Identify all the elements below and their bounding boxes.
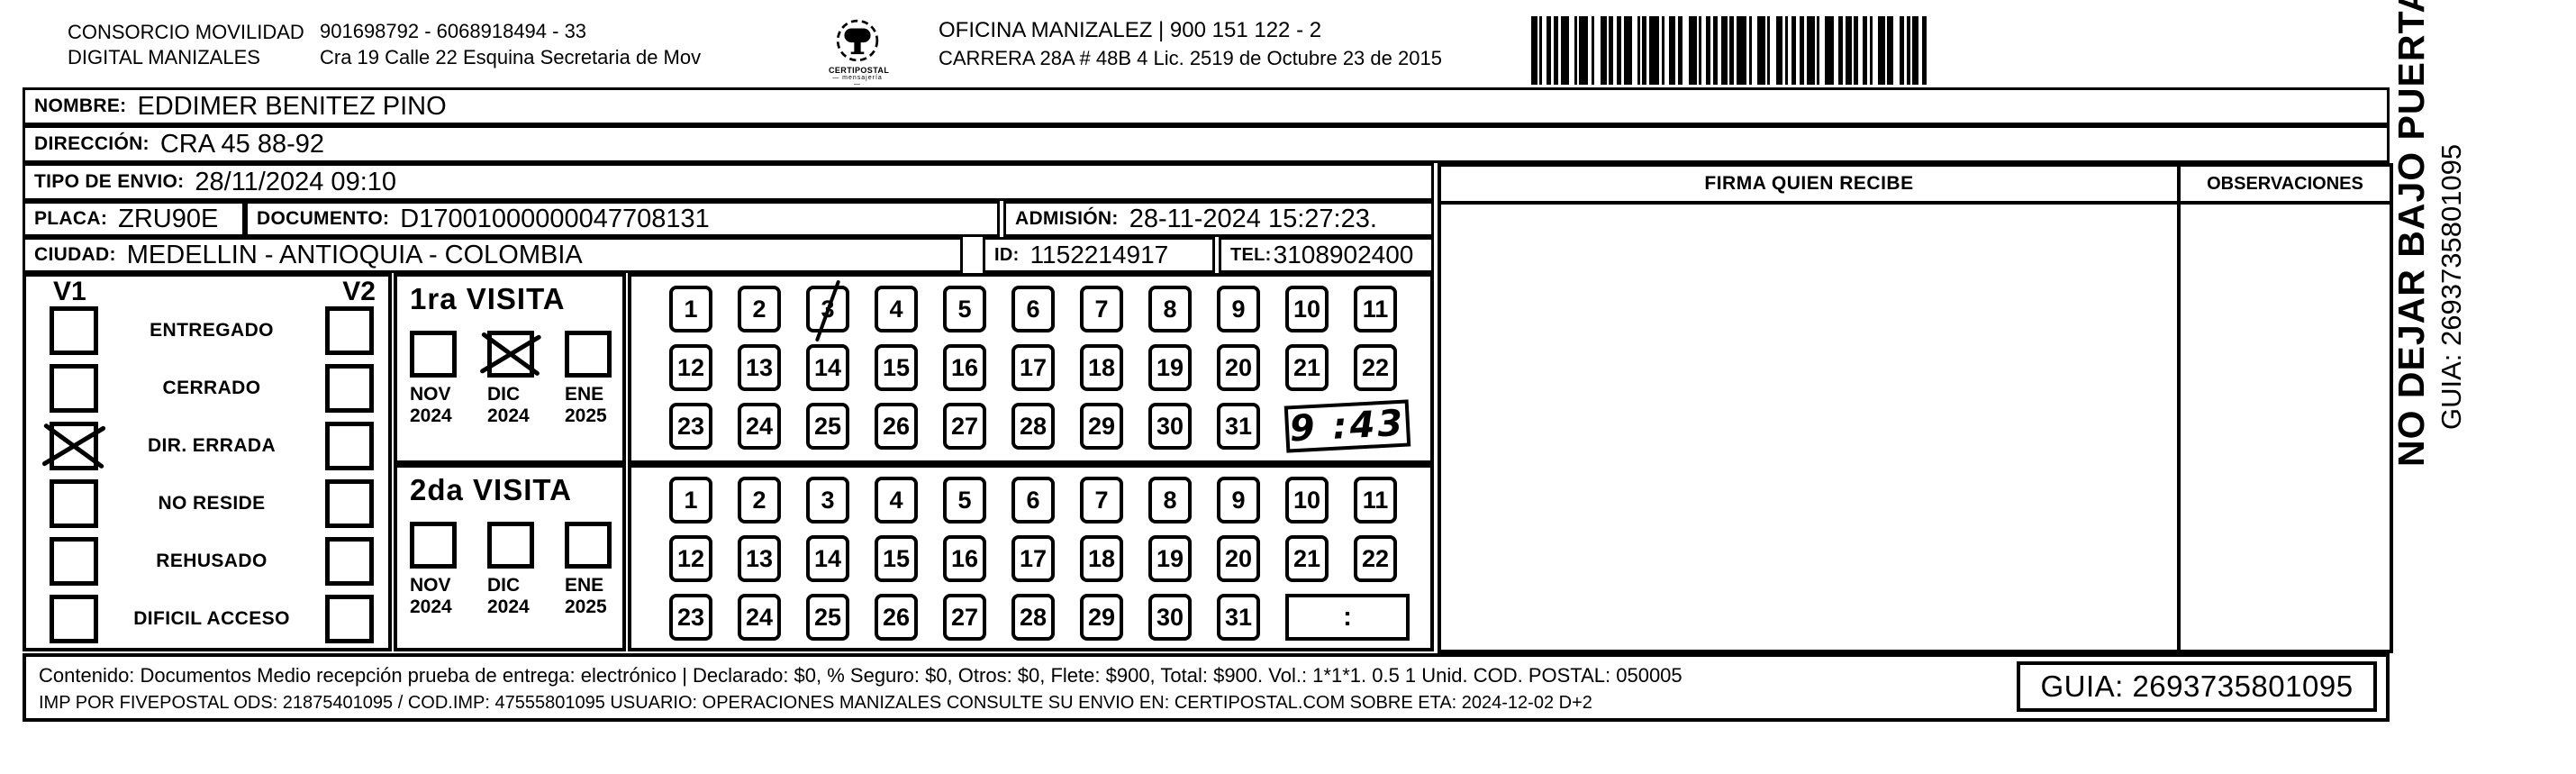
- certipostal-logo-icon: [835, 18, 880, 63]
- signature-region: FIRMA QUIEN RECIBE OBSERVACIONES: [1438, 163, 2393, 653]
- certipostal-logo: CERTIPOSTAL — mensajería —: [829, 18, 886, 87]
- day-cell: 25: [806, 594, 849, 641]
- day-cell: 10: [1285, 477, 1329, 524]
- barcode-bar: [1617, 16, 1621, 85]
- day-cell: 31: [1217, 403, 1260, 450]
- barcode-bar: [1574, 16, 1577, 85]
- day-cell: 26: [875, 403, 918, 450]
- field-admision: ADMISIÓN: 28-11-2024 15:27:23.: [1003, 201, 1434, 237]
- day-cell: 10: [1285, 286, 1329, 332]
- day-cell: 22: [1354, 344, 1397, 391]
- field-documento: DOCUMENTO: D17001000000047708131: [245, 201, 1000, 237]
- company-line1: CONSORCIO MOVILIDAD: [68, 20, 304, 45]
- v1-checkbox: [50, 537, 98, 586]
- day-cell: 28: [1011, 594, 1055, 641]
- visit2-panel: 2da VISITA NOV2024DIC2024ENE2025: [394, 464, 626, 651]
- barcode-bar: [1649, 16, 1659, 85]
- month-year: 2024: [410, 596, 452, 618]
- side-guia-text: GUIA: 2693735801095: [2435, 106, 2475, 467]
- v1-checkbox: [50, 595, 98, 643]
- footer-content-line: Contenido: Documentos Medio recepción pr…: [39, 664, 1683, 687]
- barcode-bar: [1870, 16, 1873, 85]
- day-cell: 16: [943, 535, 986, 582]
- month-option: NOV2024: [410, 331, 457, 427]
- barcode-bar: [1776, 16, 1782, 85]
- firma-signature-space: [1441, 205, 2177, 650]
- company-line2: DIGITAL MANIZALES: [68, 45, 304, 70]
- status-row: CERRADO: [50, 367, 374, 410]
- barcode: [1531, 16, 1929, 85]
- day-cell: 31: [1217, 594, 1260, 641]
- day-cell: 18: [1080, 535, 1123, 582]
- barcode-bar: [1539, 16, 1542, 85]
- day-cell: 12: [669, 535, 712, 582]
- visit-time-cell: :: [1285, 594, 1410, 641]
- day-row: 1213141516171819202122: [669, 344, 1430, 391]
- month-checkbox: [565, 522, 612, 569]
- day-cell: 16: [943, 344, 986, 391]
- observaciones-header: OBSERVACIONES: [2177, 167, 2390, 201]
- visit2-months: NOV2024DIC2024ENE2025: [397, 507, 622, 618]
- barcode-bar: [1900, 16, 1904, 85]
- barcode-bar: [1749, 16, 1752, 85]
- documento-value: D17001000000047708131: [400, 205, 710, 234]
- handwritten-x-mark: [47, 419, 101, 473]
- barcode-bar: [1699, 16, 1701, 85]
- footer: Contenido: Documentos Medio recepción pr…: [23, 653, 2390, 722]
- barcode-bar: [1669, 16, 1675, 85]
- day-cell: 23: [669, 594, 712, 641]
- v1-header: V1: [53, 277, 86, 307]
- field-id: ID: 1152214917: [983, 237, 1215, 273]
- day-cell: 6: [1011, 286, 1055, 332]
- day-cell: 15: [875, 535, 918, 582]
- day-cell: 8: [1148, 286, 1192, 332]
- status-option-label: ENTREGADO: [98, 320, 325, 341]
- status-option-label: DIR. ERRADA: [98, 435, 325, 457]
- barcode-bar: [1800, 16, 1804, 85]
- scanned-delivery-form: CONSORCIO MOVILIDAD DIGITAL MANIZALES 90…: [0, 0, 2576, 774]
- barcode-bar: [1689, 16, 1697, 85]
- day-cell: 24: [738, 594, 781, 641]
- field-ciudad: CIUDAD: MEDELLIN - ANTIOQUIA - COLOMBIA: [23, 237, 963, 273]
- day-cell: 24: [738, 403, 781, 450]
- barcode-bar: [1662, 16, 1664, 85]
- barcode-bar: [1817, 16, 1819, 85]
- v2-checkbox: [325, 364, 374, 413]
- field-tel: TEL: 3108902400: [1219, 237, 1434, 273]
- day-cell: 1: [669, 286, 712, 332]
- day-cell: 4: [875, 477, 918, 524]
- tipo-envio-label: TIPO DE ENVIO:: [34, 171, 184, 193]
- day-cell: 21: [1285, 344, 1329, 391]
- month-checkbox: [487, 522, 534, 569]
- logo-caption: CERTIPOSTAL: [829, 66, 886, 75]
- barcode-bar: [1907, 16, 1909, 85]
- barcode-bar: [1713, 16, 1718, 85]
- day-cell: 20: [1217, 344, 1260, 391]
- day-cell: 17: [1011, 344, 1055, 391]
- barcode-bar: [1642, 16, 1646, 85]
- day-cell: 11: [1354, 477, 1397, 524]
- day-cell: 12: [669, 344, 712, 391]
- barcode-bar: [1637, 16, 1640, 85]
- tel-label: TEL:: [1230, 245, 1272, 266]
- field-nombre: NOMBRE: EDDIMER BENITEZ PINO: [23, 87, 2390, 125]
- barcode-bar: [1854, 16, 1858, 85]
- day-cell: 9: [1217, 286, 1260, 332]
- visit1-day-grid: 1234567891011121314151617181920212223242…: [628, 273, 1434, 464]
- barcode-bar: [1807, 16, 1815, 85]
- day-cell: 30: [1148, 403, 1192, 450]
- admision-value: 28-11-2024 15:27:23.: [1129, 205, 1377, 234]
- day-cell: 20: [1217, 535, 1260, 582]
- company-registration: 901698792 - 6068918494 - 33 Cra 19 Calle…: [320, 18, 701, 70]
- day-cell: 26: [875, 594, 918, 641]
- month-checkbox: [565, 331, 612, 378]
- day-cell: 8: [1148, 477, 1192, 524]
- handwritten-x-mark: [485, 328, 537, 380]
- barcode-bar: [1737, 16, 1746, 85]
- signature-header-row: FIRMA QUIEN RECIBE OBSERVACIONES: [1441, 167, 2390, 205]
- day-cell: 1: [669, 477, 712, 524]
- field-tipo-envio: TIPO DE ENVIO: 28/11/2024 09:10: [23, 163, 1434, 201]
- day-cell: 5: [943, 477, 986, 524]
- barcode-bar: [1547, 16, 1551, 85]
- v1-checkbox: [50, 306, 98, 355]
- barcode-bar: [1592, 16, 1594, 85]
- field-placa: PLACA: ZRU90E: [23, 201, 245, 237]
- v2-checkbox: [325, 595, 374, 643]
- barcode-bar: [1863, 16, 1867, 85]
- day-cell: 11: [1354, 286, 1397, 332]
- day-cell: 6: [1011, 477, 1055, 524]
- ciudad-value: MEDELLIN - ANTIOQUIA - COLOMBIA: [127, 241, 583, 270]
- day-cell: 22: [1354, 535, 1397, 582]
- ciudad-label: CIUDAD:: [34, 244, 116, 266]
- id-value: 1152214917: [1030, 241, 1169, 269]
- v2-header: V2: [342, 277, 376, 307]
- day-cell: 13: [738, 535, 781, 582]
- day-cell: 29: [1080, 403, 1123, 450]
- month-checkbox: [410, 331, 457, 378]
- nombre-value: EDDIMER BENITEZ PINO: [137, 92, 446, 122]
- visit-time-cell: 9 :43: [1284, 399, 1411, 452]
- registration-numbers: 901698792 - 6068918494 - 33: [320, 18, 701, 44]
- side-warning-text: NO DEJAR BAJO PUERTA: [2390, 106, 2437, 467]
- barcode-bar: [1706, 16, 1710, 85]
- day-cell: 25: [806, 403, 849, 450]
- guia-number-box: GUIA: 2693735801095: [2017, 661, 2377, 712]
- status-option-label: CERRADO: [98, 378, 325, 399]
- day-cell: 18: [1080, 344, 1123, 391]
- month-name: DIC: [487, 384, 520, 405]
- month-year: 2024: [487, 596, 530, 618]
- day-row: 232425262728293031:: [669, 594, 1430, 641]
- status-option-label: DIFICIL ACCESO: [98, 608, 325, 630]
- visit2-day-grid: 1234567891011121314151617181920212223242…: [628, 464, 1434, 651]
- day-cell: 7: [1080, 286, 1123, 332]
- barcode-bar: [1878, 16, 1886, 85]
- nombre-label: NOMBRE:: [34, 96, 126, 117]
- day-cell: 15: [875, 344, 918, 391]
- month-option: ENE2025: [565, 522, 612, 618]
- status-row: DIFICIL ACCESO: [50, 597, 374, 641]
- month-option: DIC2024: [487, 331, 534, 427]
- day-row: 2324252627282930319 :43: [669, 403, 1430, 450]
- month-year: 2025: [565, 596, 607, 618]
- barcode-bar: [1846, 16, 1852, 85]
- v2-checkbox: [325, 479, 374, 528]
- barcode-bar: [1601, 16, 1607, 85]
- month-option: ENE2025: [565, 331, 612, 427]
- month-name: ENE: [565, 384, 603, 405]
- day-cell: 2: [738, 286, 781, 332]
- month-name: DIC: [487, 575, 520, 596]
- v2-checkbox: [325, 422, 374, 470]
- day-cell: 9: [1217, 477, 1260, 524]
- observaciones-space: [2177, 205, 2390, 650]
- handwritten-slash-mark: [810, 289, 846, 329]
- placa-label: PLACA:: [34, 208, 107, 230]
- barcode-bar: [1721, 16, 1728, 85]
- month-checkbox: [410, 522, 457, 569]
- logo-tagline: — mensajería —: [829, 75, 886, 87]
- day-cell: 5: [943, 286, 986, 332]
- day-cell: 4: [875, 286, 918, 332]
- day-cell: 2: [738, 477, 781, 524]
- month-year: 2024: [487, 405, 530, 427]
- barcode-bar: [1624, 16, 1632, 85]
- status-row: NO RESIDE: [50, 482, 374, 525]
- footer-imp-line: IMP POR FIVEPOSTAL ODS: 21875401095 / CO…: [39, 693, 1683, 714]
- barcode-bar: [1887, 16, 1893, 85]
- office-name: OFICINA MANIZALEZ | 900 151 122 - 2: [939, 18, 1442, 43]
- v2-checkbox: [325, 537, 374, 586]
- month-option: NOV2024: [410, 522, 457, 618]
- barcode-bar: [1757, 16, 1765, 85]
- barcode-bar: [1825, 16, 1835, 85]
- day-cell: 7: [1080, 477, 1123, 524]
- day-cell: 13: [738, 344, 781, 391]
- tel-value: 3108902400: [1274, 241, 1414, 269]
- firma-quien-recibe-header: FIRMA QUIEN RECIBE: [1441, 167, 2177, 201]
- day-cell: 17: [1011, 535, 1055, 582]
- office-info: OFICINA MANIZALEZ | 900 151 122 - 2 CARR…: [939, 18, 1442, 70]
- status-option-label: REHUSADO: [98, 551, 325, 572]
- barcode-bar: [1838, 16, 1843, 85]
- direccion-label: DIRECCIÓN:: [34, 133, 150, 155]
- v1-checkbox: [50, 422, 98, 470]
- status-panel: V1 V2 ENTREGADOCERRADODIR. ERRADANO RESI…: [23, 273, 392, 651]
- month-name: NOV: [410, 384, 451, 405]
- admision-label: ADMISIÓN:: [1015, 208, 1119, 230]
- office-address: CARRERA 28A # 48B 4 Lic. 2519 de Octubre…: [939, 47, 1442, 70]
- day-row: 1234567891011: [669, 477, 1430, 524]
- day-cell: 27: [943, 403, 986, 450]
- barcode-bar: [1579, 16, 1589, 85]
- month-name: ENE: [565, 575, 603, 596]
- day-cell: 14: [806, 344, 849, 391]
- day-cell: 27: [943, 594, 986, 641]
- day-cell: 29: [1080, 594, 1123, 641]
- day-cell: 30: [1148, 594, 1192, 641]
- day-cell: 19: [1148, 535, 1192, 582]
- day-cell: 23: [669, 403, 712, 450]
- status-row: REHUSADO: [50, 540, 374, 583]
- status-option-label: NO RESIDE: [98, 493, 325, 514]
- month-year: 2025: [565, 405, 607, 427]
- barcode-bar: [1785, 16, 1788, 85]
- barcode-bar: [1531, 16, 1537, 85]
- barcode-bar: [1678, 16, 1683, 85]
- registration-address: Cra 19 Calle 22 Esquina Secretaria de Mo…: [320, 44, 701, 70]
- placa-value: ZRU90E: [118, 205, 218, 234]
- barcode-bar: [1922, 16, 1927, 85]
- company-name: CONSORCIO MOVILIDAD DIGITAL MANIZALES: [68, 20, 304, 70]
- signature-body: [1441, 205, 2390, 650]
- id-label: ID:: [994, 245, 1020, 266]
- status-row: DIR. ERRADA: [50, 424, 374, 468]
- direccion-value: CRA 45 88-92: [160, 130, 324, 159]
- day-row: 1213141516171819202122: [669, 535, 1430, 582]
- documento-label: DOCUMENTO:: [257, 208, 389, 230]
- day-cell: 28: [1011, 403, 1055, 450]
- day-cell: 19: [1148, 344, 1192, 391]
- day-cell: 3: [806, 477, 849, 524]
- day-cell: 21: [1285, 535, 1329, 582]
- month-option: DIC2024: [487, 522, 534, 618]
- day-row: 1234567891011: [669, 286, 1430, 332]
- status-rows: ENTREGADOCERRADODIR. ERRADANO RESIDEREHU…: [26, 309, 388, 641]
- visit1-panel: 1ra VISITA NOV2024DIC2024ENE2025: [394, 273, 626, 464]
- footer-text: Contenido: Documentos Medio recepción pr…: [39, 664, 1683, 714]
- v1-checkbox: [50, 479, 98, 528]
- barcode-bar: [1791, 16, 1796, 85]
- barcode-bar: [1561, 16, 1569, 85]
- day-cell: 14: [806, 535, 849, 582]
- month-name: NOV: [410, 575, 451, 596]
- v2-checkbox: [325, 306, 374, 355]
- status-row: ENTREGADO: [50, 309, 374, 352]
- day-cell: 3: [806, 286, 849, 332]
- month-checkbox: [487, 331, 534, 378]
- barcode-bar: [1554, 16, 1558, 85]
- visit1-months: NOV2024DIC2024ENE2025: [397, 316, 622, 427]
- barcode-bar: [1729, 16, 1734, 85]
- barcode-bar: [1609, 16, 1613, 85]
- barcode-bar: [1912, 16, 1918, 85]
- visit1-title: 1ra VISITA: [410, 282, 622, 316]
- field-direccion: DIRECCIÓN: CRA 45 88-92: [23, 125, 2390, 163]
- tipo-envio-value: 28/11/2024 09:10: [195, 168, 396, 197]
- v1-checkbox: [50, 364, 98, 413]
- barcode-bar: [1767, 16, 1770, 85]
- visit2-title: 2da VISITA: [410, 473, 622, 507]
- month-year: 2024: [410, 405, 452, 427]
